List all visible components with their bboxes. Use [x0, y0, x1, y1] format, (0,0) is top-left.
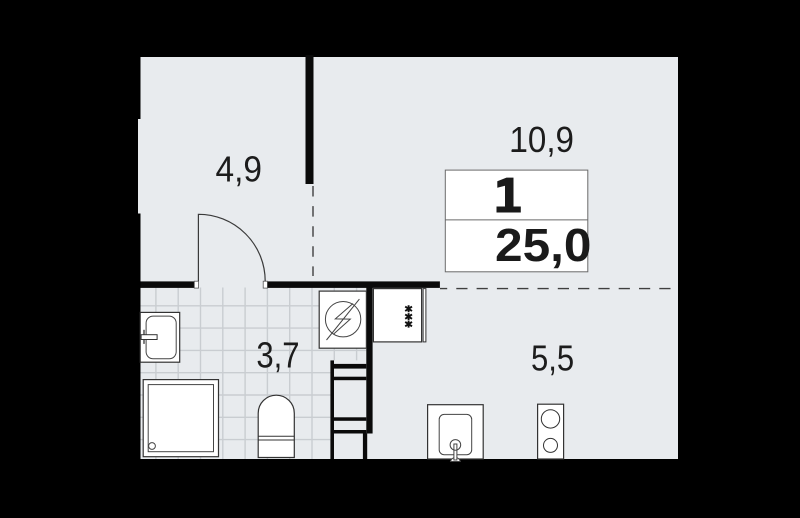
svg-text:5,5: 5,5	[531, 337, 574, 378]
svg-text:3,7: 3,7	[256, 334, 299, 375]
svg-text:10,9: 10,9	[510, 119, 575, 160]
svg-text:4,9: 4,9	[216, 148, 263, 189]
svg-text:25,0: 25,0	[495, 219, 592, 271]
